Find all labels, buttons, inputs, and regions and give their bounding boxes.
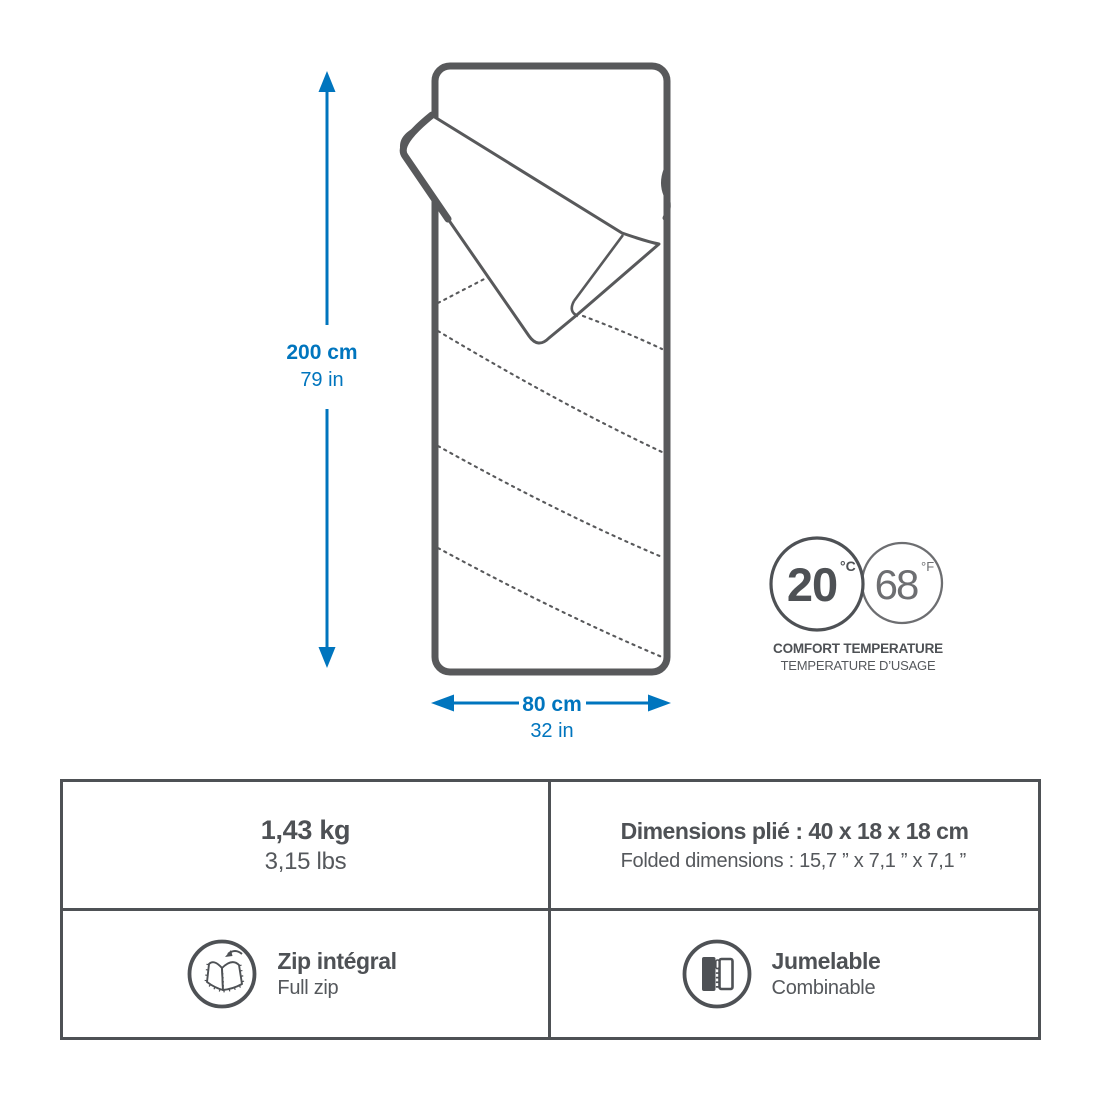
arrow-right-head [648, 695, 671, 712]
comfort-caption-fr: TEMPERATURE D’USAGE [781, 658, 936, 673]
folded-dimensions-primary: Dimensions plié : 40 x 18 x 18 cm [621, 816, 969, 847]
folded-dimensions-cell: Dimensions plié : 40 x 18 x 18 cm Folded… [551, 782, 1038, 911]
weight-secondary: 3,15 lbs [261, 847, 350, 877]
full-zip-secondary: Full zip [277, 975, 396, 1001]
celsius-value: 20 [787, 558, 837, 611]
arrow-down-head [319, 647, 336, 668]
combinable-primary: Jumelable [772, 947, 881, 975]
folded-dimensions-secondary: Folded dimensions : 15,7 ” x 7,1 ” x 7,1… [621, 847, 969, 875]
fahrenheit-unit: °F [921, 559, 934, 574]
weight-cell: 1,43 kg 3,15 lbs [63, 782, 551, 911]
full-zip-primary: Zip intégral [277, 947, 396, 975]
full-zip-cell: Zip intégral Full zip [63, 911, 551, 1037]
combinable-cell: Jumelable Combinable [551, 911, 1038, 1037]
combinable-secondary: Combinable [772, 975, 881, 1001]
arrow-up-head [319, 71, 336, 92]
fahrenheit-value: 68 [875, 561, 918, 608]
celsius-unit: °C [840, 558, 856, 574]
height-label-imperial: 79 in [300, 369, 343, 391]
weight-primary: 1,43 kg [261, 814, 350, 847]
specs-table: 1,43 kg 3,15 lbs Dimensions plié : 40 x … [60, 779, 1041, 1040]
full-zip-icon [186, 938, 258, 1010]
sleeping-bag-diagram: 200 cm 79 in 80 cm 32 in 68 °F 20 °C COM… [0, 0, 1100, 770]
comfort-caption-en: COMFORT TEMPERATURE [773, 641, 943, 656]
arrow-left-head [431, 695, 454, 712]
height-label-metric: 200 cm [286, 341, 357, 364]
width-label-metric: 80 cm [522, 693, 582, 716]
width-label-imperial: 32 in [530, 720, 573, 742]
product-spec-sheet: 200 cm 79 in 80 cm 32 in 68 °F 20 °C COM… [0, 0, 1100, 1100]
comfort-temperature-badge: 68 °F 20 °C COMFORT TEMPERATURE TEMPERAT… [771, 538, 943, 673]
combinable-icon [681, 938, 753, 1010]
